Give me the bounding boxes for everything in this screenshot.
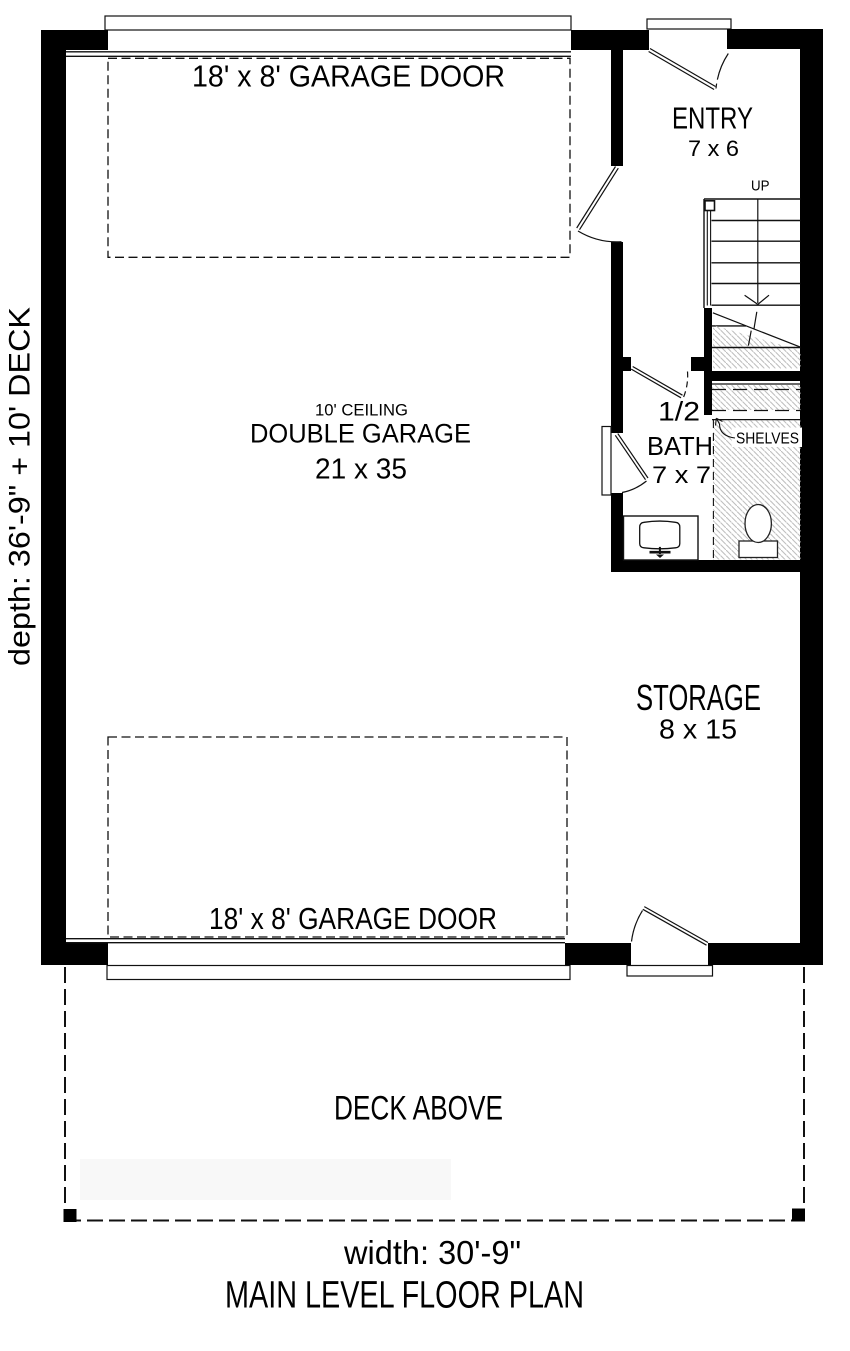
svg-text:18' x 8' GARAGE DOOR: 18' x 8' GARAGE DOOR (192, 59, 505, 94)
svg-text:8 x 15: 8 x 15 (659, 714, 737, 745)
svg-text:MAIN LEVEL FLOOR PLAN: MAIN LEVEL FLOOR PLAN (225, 1275, 584, 1317)
svg-text:10' CEILING: 10' CEILING (315, 401, 408, 420)
svg-text:DOUBLE GARAGE: DOUBLE GARAGE (250, 419, 471, 449)
svg-text:7 x 6: 7 x 6 (688, 136, 739, 161)
svg-text:DECK ABOVE: DECK ABOVE (334, 1090, 503, 1128)
svg-text:18' x 8' GARAGE DOOR: 18' x 8' GARAGE DOOR (209, 901, 497, 936)
svg-text:BATH: BATH (647, 431, 713, 461)
svg-text:width: 30'-9": width: 30'-9" (343, 1234, 521, 1271)
svg-text:ENTRY: ENTRY (672, 101, 753, 136)
svg-text:1/2: 1/2 (658, 397, 700, 427)
svg-text:depth: 36'-9" + 10' DECK: depth: 36'-9" + 10' DECK (4, 307, 37, 666)
svg-text:7 x 7: 7 x 7 (652, 462, 711, 489)
svg-text:21 x 35: 21 x 35 (315, 454, 407, 486)
svg-text:STORAGE: STORAGE (636, 677, 761, 718)
svg-text:SHELVES: SHELVES (736, 431, 799, 448)
svg-text:UP: UP (751, 178, 770, 195)
